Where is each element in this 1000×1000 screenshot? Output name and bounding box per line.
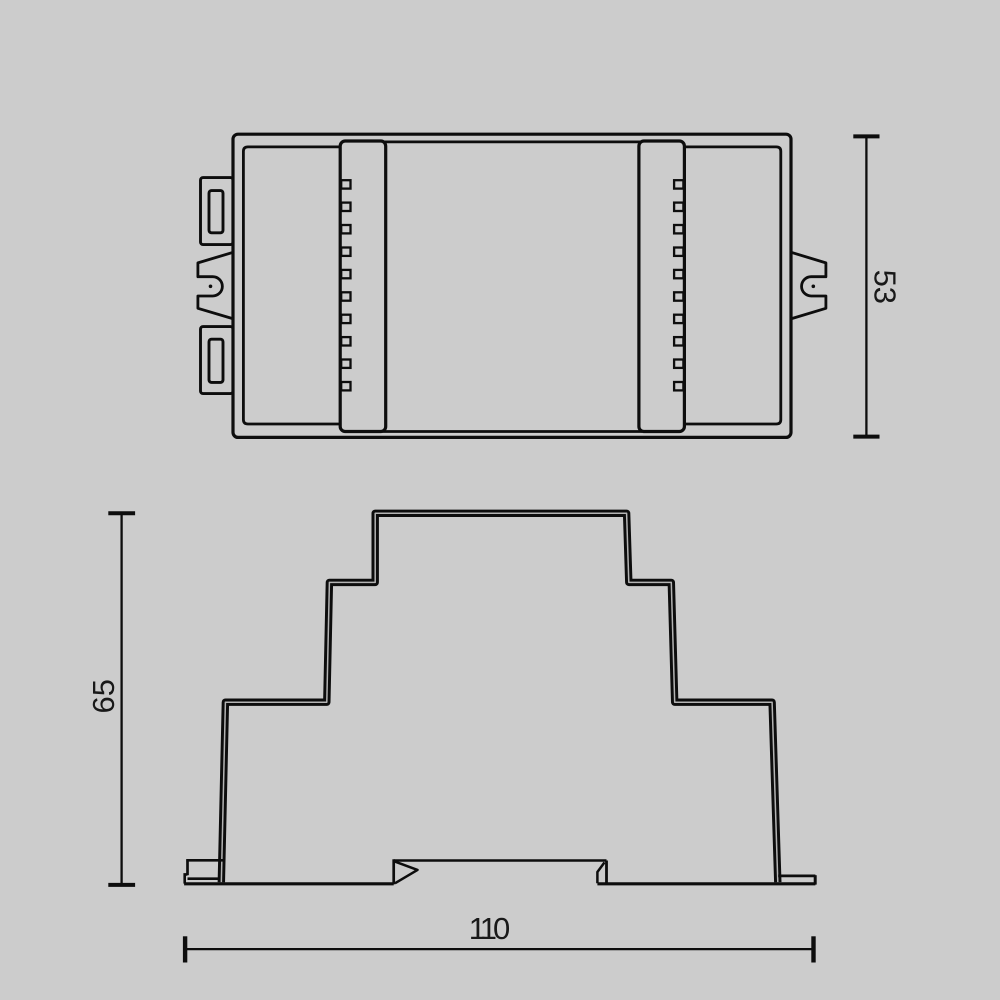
- svg-text:110: 110: [469, 911, 510, 946]
- svg-text:53: 53: [867, 270, 902, 304]
- svg-text:65: 65: [86, 679, 121, 713]
